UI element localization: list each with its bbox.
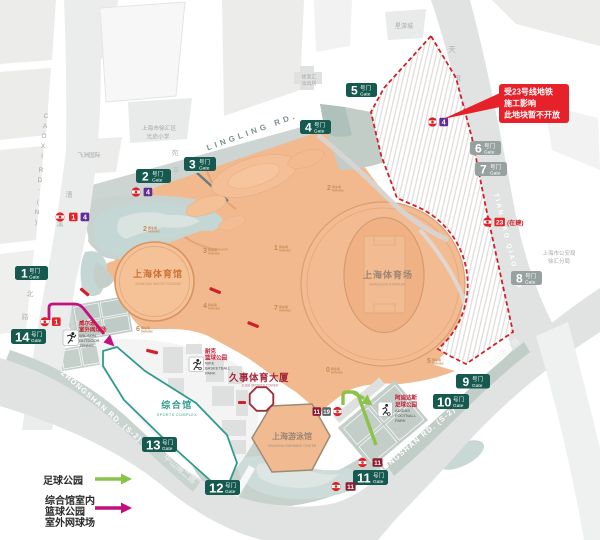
svg-text:PARKING: PARKING bbox=[432, 362, 444, 366]
svg-text:I: I bbox=[41, 153, 43, 160]
svg-text:PARKING: PARKING bbox=[141, 330, 153, 334]
svg-text:号门: 号门 bbox=[472, 375, 483, 383]
svg-text:PARKING: PARKING bbox=[332, 189, 344, 193]
svg-text:号门: 号门 bbox=[490, 163, 501, 171]
svg-text:.: . bbox=[38, 185, 40, 192]
svg-text:1: 1 bbox=[54, 319, 58, 326]
svg-text:号门: 号门 bbox=[152, 170, 163, 178]
svg-text:(在建): (在建) bbox=[507, 219, 524, 227]
svg-text:上海游泳馆: 上海游泳馆 bbox=[272, 431, 312, 441]
svg-text:上海体育馆: 上海体育馆 bbox=[133, 268, 183, 279]
svg-text:派出所: 派出所 bbox=[301, 80, 316, 87]
svg-text:宛: 宛 bbox=[172, 148, 179, 157]
svg-text:耐克: 耐克 bbox=[205, 347, 217, 355]
svg-text:SHANGHAI STADIUM: SHANGHAI STADIUM bbox=[369, 283, 405, 287]
svg-text:4: 4 bbox=[442, 120, 446, 127]
svg-text:PARK: PARK bbox=[205, 371, 216, 376]
svg-text:飞洲国际: 飞洲国际 bbox=[77, 151, 100, 159]
svg-text:平: 平 bbox=[173, 167, 180, 175]
svg-text:11: 11 bbox=[357, 471, 371, 486]
svg-text:徐家汇: 徐家汇 bbox=[301, 74, 316, 81]
svg-text:上海市公安局: 上海市公安局 bbox=[542, 249, 575, 257]
svg-text:7: 7 bbox=[480, 163, 487, 177]
svg-text:停车场: 停车场 bbox=[148, 225, 157, 230]
svg-text:篮球公园: 篮球公园 bbox=[44, 505, 85, 518]
svg-text:14: 14 bbox=[15, 330, 30, 345]
svg-text:11: 11 bbox=[374, 460, 381, 467]
svg-text:4: 4 bbox=[83, 215, 87, 222]
svg-text:路: 路 bbox=[22, 312, 29, 321]
svg-text:8: 8 bbox=[516, 272, 523, 286]
svg-text:SHANGHAI INDOOR STADIUM: SHANGHAI INDOOR STADIUM bbox=[135, 282, 181, 286]
svg-text:受23号线地铁: 受23号线地铁 bbox=[504, 87, 553, 97]
svg-text:久事体育大厦: 久事体育大厦 bbox=[229, 372, 289, 384]
svg-text:北: 北 bbox=[27, 290, 34, 298]
svg-text:4: 4 bbox=[203, 303, 207, 310]
svg-text:Gate: Gate bbox=[152, 178, 163, 184]
svg-text:1: 1 bbox=[274, 245, 278, 252]
svg-text:上海市徐汇区: 上海市徐汇区 bbox=[142, 124, 177, 132]
svg-text:C: C bbox=[44, 113, 49, 120]
svg-text:号门: 号门 bbox=[525, 272, 536, 280]
svg-text:SHANGHAI SWIMMING CENTER: SHANGHAI SWIMMING CENTER bbox=[268, 444, 317, 448]
svg-text:号门: 号门 bbox=[484, 142, 495, 150]
svg-text:Gate: Gate bbox=[525, 280, 536, 286]
svg-text:停车场: 停车场 bbox=[279, 304, 288, 309]
svg-text:R: R bbox=[39, 167, 44, 174]
svg-text:19: 19 bbox=[323, 410, 330, 416]
svg-text:11: 11 bbox=[314, 410, 321, 416]
svg-text:光启小学: 光启小学 bbox=[146, 133, 169, 141]
svg-text:11: 11 bbox=[347, 484, 354, 491]
svg-text:徐汇分局: 徐汇分局 bbox=[548, 257, 570, 265]
svg-text:3: 3 bbox=[189, 158, 196, 172]
svg-text:PARKING: PARKING bbox=[148, 230, 160, 234]
svg-text:号门: 号门 bbox=[225, 482, 236, 490]
svg-text:6: 6 bbox=[136, 326, 140, 333]
svg-text:2: 2 bbox=[327, 185, 331, 192]
svg-text:JUSS SPORTS TOWER: JUSS SPORTS TOWER bbox=[242, 384, 279, 388]
svg-text:停车场: 停车场 bbox=[332, 184, 341, 189]
svg-text:PARKING: PARKING bbox=[208, 252, 220, 256]
svg-text:4: 4 bbox=[305, 121, 312, 135]
svg-text:号门: 号门 bbox=[199, 158, 210, 166]
svg-text:Gate: Gate bbox=[314, 129, 325, 135]
svg-text:Gate: Gate bbox=[453, 403, 464, 409]
svg-text:6: 6 bbox=[475, 142, 482, 156]
svg-text:号门: 号门 bbox=[373, 472, 384, 480]
svg-text:Gate: Gate bbox=[225, 489, 236, 495]
svg-text:SPORTS COMPLEX: SPORTS COMPLEX bbox=[157, 413, 197, 417]
svg-text:Gate: Gate bbox=[373, 479, 384, 485]
svg-text:号门: 号门 bbox=[314, 121, 325, 129]
svg-text:1: 1 bbox=[71, 215, 75, 222]
svg-text:2: 2 bbox=[142, 170, 149, 184]
svg-text:停车场: 停车场 bbox=[208, 247, 217, 252]
svg-text:施工影响: 施工影响 bbox=[504, 98, 536, 108]
svg-text:PARK: PARK bbox=[395, 418, 406, 423]
svg-text:D: D bbox=[38, 177, 43, 184]
svg-text:漕: 漕 bbox=[66, 190, 73, 199]
svg-text:阿迪达斯: 阿迪达斯 bbox=[395, 394, 418, 402]
svg-text:停车场: 停车场 bbox=[279, 244, 288, 249]
svg-text:号门: 号门 bbox=[29, 267, 40, 275]
svg-text:1: 1 bbox=[21, 267, 28, 281]
svg-text:Gate: Gate bbox=[29, 275, 40, 281]
svg-text:23: 23 bbox=[496, 219, 504, 226]
svg-text:号门: 号门 bbox=[31, 331, 42, 339]
svg-text:威尔逊: 威尔逊 bbox=[79, 319, 96, 327]
svg-text:停车场: 停车场 bbox=[141, 325, 150, 330]
svg-text:Gate: Gate bbox=[472, 383, 483, 389]
svg-text:PARKING: PARKING bbox=[208, 307, 220, 311]
svg-text:号门: 号门 bbox=[360, 84, 371, 92]
svg-text:室外网球场: 室外网球场 bbox=[45, 516, 95, 529]
svg-text:12: 12 bbox=[209, 481, 223, 496]
svg-text:号门: 号门 bbox=[162, 439, 173, 447]
svg-text:5: 5 bbox=[427, 358, 431, 365]
svg-text:星游城: 星游城 bbox=[395, 22, 413, 30]
svg-text:综合馆室内: 综合馆室内 bbox=[45, 494, 95, 507]
svg-text:O: O bbox=[41, 133, 46, 140]
svg-text:Gate: Gate bbox=[199, 166, 210, 172]
svg-text:天: 天 bbox=[448, 45, 456, 54]
svg-text:9: 9 bbox=[463, 375, 470, 389]
svg-text:PARKING: PARKING bbox=[279, 249, 291, 253]
svg-text:PARKING: PARKING bbox=[331, 371, 343, 375]
svg-text:停车场: 停车场 bbox=[432, 357, 441, 362]
svg-text:上海体育场: 上海体育场 bbox=[363, 269, 413, 280]
svg-text:号门: 号门 bbox=[453, 396, 464, 404]
svg-text:Gate: Gate bbox=[484, 150, 495, 156]
svg-text:停车场: 停车场 bbox=[208, 302, 217, 307]
svg-text:A: A bbox=[43, 123, 48, 130]
svg-text:Gate: Gate bbox=[360, 92, 371, 98]
svg-text:3: 3 bbox=[203, 248, 207, 255]
svg-text:停车场: 停车场 bbox=[331, 366, 340, 371]
svg-text:4: 4 bbox=[146, 190, 150, 197]
svg-text:7: 7 bbox=[274, 305, 278, 312]
svg-text:此地块暂不开放: 此地块暂不开放 bbox=[504, 110, 561, 120]
svg-text:5: 5 bbox=[351, 84, 358, 98]
svg-text:N: N bbox=[35, 209, 40, 216]
svg-text:Gate: Gate bbox=[31, 338, 42, 344]
svg-text:13: 13 bbox=[146, 438, 160, 453]
svg-text:10: 10 bbox=[437, 395, 451, 410]
svg-text:综合馆: 综合馆 bbox=[161, 399, 193, 410]
svg-text:TENNIS: TENNIS bbox=[79, 343, 94, 348]
svg-text:Gate: Gate bbox=[490, 171, 501, 177]
svg-text:PARKING: PARKING bbox=[279, 309, 291, 313]
svg-text:Gate: Gate bbox=[162, 446, 173, 452]
svg-text:足球公园: 足球公园 bbox=[43, 474, 83, 487]
svg-text:X: X bbox=[41, 143, 46, 150]
svg-text:0: 0 bbox=[326, 367, 330, 374]
svg-text:2: 2 bbox=[143, 226, 147, 233]
svg-text:): ) bbox=[35, 219, 37, 226]
